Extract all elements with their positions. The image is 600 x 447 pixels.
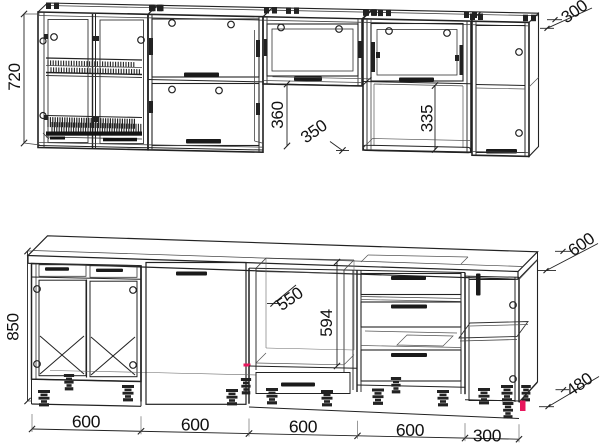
svg-text:360: 360 — [268, 101, 287, 128]
svg-text:600: 600 — [396, 420, 425, 440]
svg-text:600: 600 — [72, 412, 101, 432]
svg-text:300: 300 — [473, 426, 502, 446]
svg-text:600: 600 — [289, 417, 318, 437]
svg-text:600: 600 — [181, 415, 210, 435]
svg-text:335: 335 — [418, 105, 437, 132]
svg-text:720: 720 — [5, 63, 24, 90]
svg-text:594: 594 — [317, 309, 336, 336]
svg-text:850: 850 — [4, 313, 23, 340]
